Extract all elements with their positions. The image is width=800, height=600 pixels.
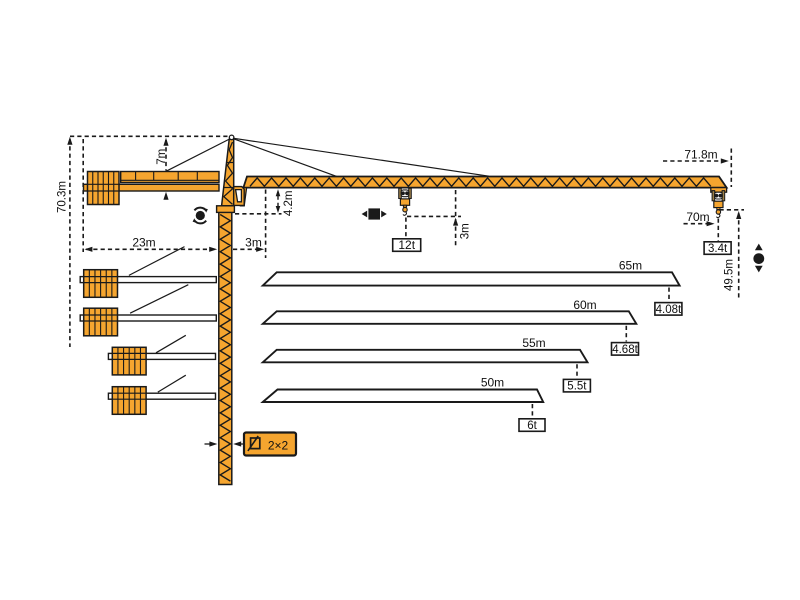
svg-text:3m: 3m (245, 235, 262, 249)
svg-text:23m: 23m (132, 235, 155, 249)
svg-text:2×2: 2×2 (268, 438, 289, 452)
svg-text:3m: 3m (460, 223, 472, 239)
svg-text:71.8m: 71.8m (684, 147, 717, 161)
svg-text:55m: 55m (522, 336, 545, 350)
svg-text:50m: 50m (481, 375, 504, 389)
svg-text:70.3m: 70.3m (57, 181, 69, 213)
svg-text:70m: 70m (686, 210, 709, 224)
svg-text:60m: 60m (573, 298, 596, 312)
svg-text:7m: 7m (156, 149, 168, 165)
svg-text:3.4t: 3.4t (708, 243, 728, 255)
svg-text:4.08t: 4.08t (656, 304, 682, 316)
svg-text:4.68t: 4.68t (612, 344, 638, 356)
svg-text:12t: 12t (398, 238, 415, 252)
svg-text:4.2m: 4.2m (283, 191, 295, 217)
svg-text:6t: 6t (527, 420, 537, 432)
svg-text:65m: 65m (619, 259, 642, 273)
svg-text:5.5t: 5.5t (567, 381, 587, 393)
svg-text:49.5m: 49.5m (723, 259, 735, 291)
